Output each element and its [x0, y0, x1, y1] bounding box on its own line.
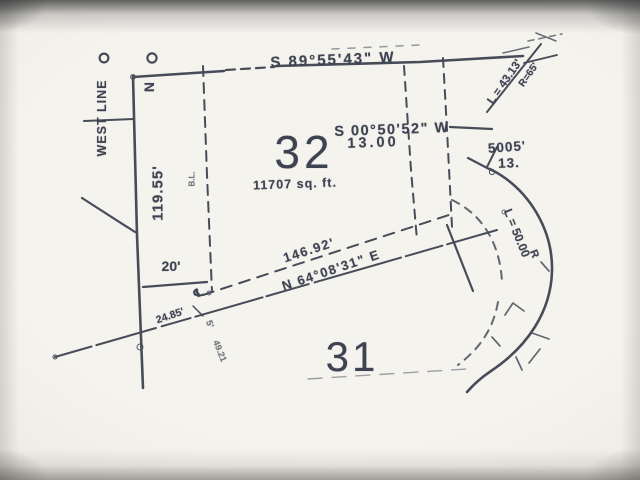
building-line-label: B.L. — [188, 171, 197, 186]
north-boundary-dashes — [226, 67, 274, 70]
lot32-number: 32 — [274, 125, 333, 179]
north-indicator-label: N — [141, 82, 157, 92]
right-secondary-distance: 13. — [498, 155, 520, 171]
leader-tick-b — [503, 47, 529, 53]
west-boundary-distance: 119.55' — [150, 165, 167, 221]
upper-offset-dashes — [332, 45, 420, 49]
east-boundary-dashed-line — [443, 58, 452, 227]
lot31-number: 31 — [326, 333, 379, 381]
road-centerline — [55, 230, 497, 357]
centerline-tick — [193, 306, 203, 316]
offset-distance: 20' — [162, 258, 181, 274]
leader-tick-c — [536, 33, 556, 41]
curve-inner-dashed-bottom — [458, 302, 498, 365]
monument-circle — [147, 53, 156, 62]
setback-dashed-line — [203, 66, 212, 292]
southeast-boundary-line — [447, 225, 473, 291]
west-line-label: WEST LINE — [95, 79, 109, 156]
tie-line — [450, 127, 492, 129]
lot32-area: 11707 sq. ft. — [253, 176, 337, 193]
road-edge-dashed-line — [203, 213, 455, 295]
east-boundary-distance: 13.00 — [347, 134, 399, 152]
right-distance: 5005' — [487, 138, 526, 156]
monument-circle — [100, 54, 109, 63]
scanned-plat-document: WEST LINE N S 89°55'43" W S 00°50'52" W … — [0, 0, 640, 480]
west-line-diagonal-tick — [82, 198, 135, 232]
top-right-dashes — [528, 34, 562, 41]
inner-dashed-line — [404, 66, 417, 240]
street-curve — [467, 169, 552, 392]
